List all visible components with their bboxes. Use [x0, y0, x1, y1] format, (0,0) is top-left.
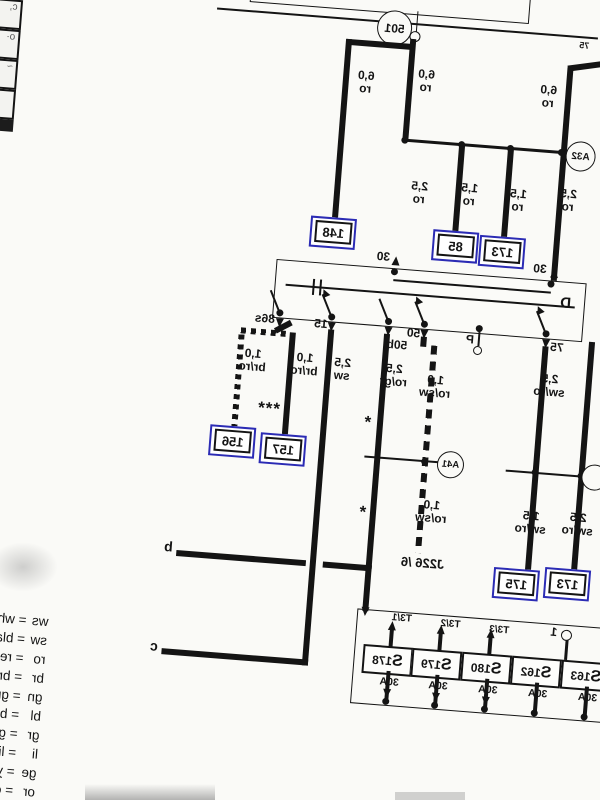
footnote-star: *: [364, 412, 372, 432]
track-box-85: 85: [431, 229, 479, 264]
arrow-up-icon: [392, 256, 401, 266]
margin-symbol-block: [0, 118, 14, 132]
terminal-1: 1: [550, 626, 558, 638]
track-box-label: 173: [483, 239, 522, 264]
track-box-156: 156: [208, 424, 256, 459]
wire-label: 2,5 sw/ro: [528, 371, 572, 399]
legend-name: green: [0, 685, 10, 703]
wire-label: 1,5 ro: [503, 187, 533, 214]
fuse-label: S162: [520, 662, 552, 682]
track-box-label: 156: [213, 429, 252, 454]
fuse-label: S179: [420, 654, 452, 674]
footnote-star: *: [359, 502, 367, 522]
wire-label: 2,5 ro: [552, 187, 584, 214]
p-terminal-dot: [473, 346, 483, 356]
switch-designation: D: [560, 297, 572, 310]
continuation-b: b: [164, 540, 173, 553]
wire-label: 1,5 ro: [454, 181, 484, 208]
margin-symbol-square: [0, 87, 16, 120]
legend-row: ws= white: [0, 602, 49, 631]
wire-label: 2,5 ro: [402, 179, 436, 206]
legend-name: lilac: [0, 742, 5, 759]
wire-50-stub: [420, 337, 427, 347]
bus-line: [404, 138, 562, 153]
arrow-up-icon: [550, 269, 559, 279]
fuse-label: S178: [371, 650, 403, 670]
wire-label: 1,0 ro/sw: [411, 497, 451, 525]
track-box-label: 157: [264, 437, 303, 462]
legend-name: blue: [0, 704, 8, 721]
legend-code: ws: [26, 610, 49, 631]
continuation-c: c: [150, 639, 159, 652]
wire-to-157: [282, 332, 296, 434]
wire-label: 2,5 ro/gr: [374, 361, 414, 389]
wire-c: [161, 648, 308, 666]
legend-name: black: [0, 628, 14, 645]
wire-label: 1,0 br/ro: [287, 350, 323, 378]
wire-branch-148-v: [332, 39, 352, 218]
wire-label: 2,5 sw: [326, 355, 358, 382]
track-box-label: 175: [497, 571, 536, 596]
legend-name: red: [0, 648, 13, 664]
arrow-up-icon: [388, 621, 397, 631]
terminal-86s: 86s: [254, 311, 275, 325]
wire-b-drop: [362, 565, 372, 611]
margin-symbol-square: ~: [0, 57, 18, 90]
arrow-up-icon: [437, 625, 446, 635]
legend-code: gn: [20, 686, 43, 707]
p-stub: [477, 332, 480, 346]
fuse-label: S180: [470, 658, 502, 678]
terminal-50: 50: [406, 326, 420, 339]
legend-name: orange: [0, 779, 2, 797]
track-box-label: 85: [436, 234, 475, 259]
terminal-30-right: 30: [533, 262, 547, 275]
legend-code: gr: [17, 724, 40, 745]
legend-code: bl: [18, 705, 41, 726]
track-box-173b: 173: [543, 567, 591, 602]
margin-symbol-square: o·: [0, 27, 21, 60]
wire-label: 2,5 sw/ro: [556, 510, 600, 538]
reference-circle-a41: A41: [436, 450, 465, 479]
margin-symbol-square: c,: [0, 0, 23, 30]
legend-name: white: [0, 609, 15, 626]
scanned-wiring-diagram-page: 75 501 6,0 ro 6,0 ro 6,0 ro 2,5 ro A32 1…: [0, 0, 600, 800]
wire-b-seg2: [176, 550, 306, 566]
track-box-173: 173: [478, 235, 526, 270]
wire-label: 6,0 ro: [532, 83, 564, 110]
reference-circle-a32: A32: [564, 140, 596, 172]
track-box-label: 148: [314, 220, 353, 245]
terminal-15: 15: [314, 317, 328, 330]
top-rail-label: 75: [579, 39, 590, 52]
track-box-175: 175: [492, 567, 540, 602]
arrow-up-icon: [487, 629, 496, 639]
legend-code: or: [12, 781, 35, 800]
legend-name: brown: [0, 666, 11, 684]
wire-label: 6,0 ro: [349, 68, 383, 95]
wire-label: 1,0 ro/sw: [415, 372, 455, 400]
wire-label: 1,5 sw/ro: [509, 508, 553, 536]
fuse-label: S163: [570, 666, 600, 686]
terminal-75: 75: [550, 341, 564, 354]
legend-name: grey: [0, 723, 7, 740]
track-box-157: 157: [259, 432, 307, 467]
fuse-s163: S163: [560, 660, 600, 693]
wire-label: 1,0 br/ro: [235, 346, 271, 374]
track-box-148: 148: [309, 216, 357, 251]
legend-code: sw: [24, 629, 47, 650]
footnote-stars: ***: [256, 398, 280, 420]
legend-code: br: [21, 667, 44, 688]
terminal-p: P: [465, 333, 474, 346]
feed-drop-line: [416, 11, 419, 33]
legend-code: li: [15, 743, 38, 764]
track-box-label: 173: [548, 571, 587, 596]
legend-code: ge: [14, 762, 37, 783]
connector-j226: J226 /6: [400, 556, 444, 571]
wire-label: 6,0 ro: [409, 67, 443, 94]
legend-code: ro: [23, 648, 46, 669]
legend-name: yellow: [0, 760, 4, 778]
wiring-diagram: 75 501 6,0 ro 6,0 ro 6,0 ro 2,5 ro A32 1…: [0, 0, 599, 800]
reference-line-left: [506, 470, 586, 478]
terminal-30-left: 30: [376, 250, 390, 263]
